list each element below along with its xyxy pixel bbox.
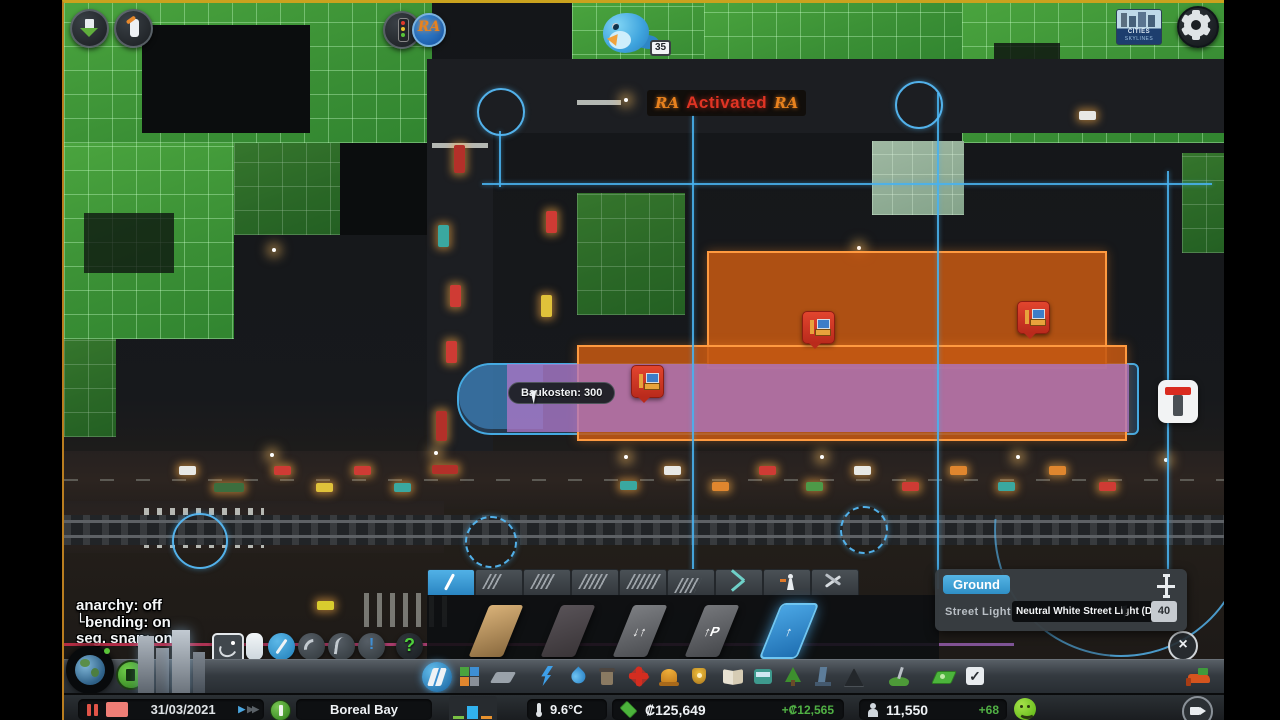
guide-circle [172, 513, 228, 569]
guide-circle [895, 81, 943, 129]
warning-toggle-button[interactable]: ! [358, 633, 385, 660]
vehicle [274, 466, 291, 475]
guide-line [482, 183, 1212, 185]
tab-medium-roads[interactable] [475, 569, 523, 596]
street-light-value-field[interactable]: 40 [1151, 601, 1177, 622]
road-item-oneway-parking[interactable]: ↑P [684, 605, 739, 657]
vehicle [541, 295, 552, 317]
tab-road-maintenance[interactable] [811, 569, 859, 596]
vehicle [854, 466, 871, 475]
toolbar-fire-department-button[interactable] [656, 664, 682, 688]
residential-demand-bar [453, 716, 464, 719]
vehicle [438, 225, 449, 247]
building-notification-icon [631, 365, 664, 398]
rci-demand-button[interactable] [270, 700, 291, 720]
toolbar-bulldozer-button[interactable] [1184, 664, 1218, 688]
logo-text: SKYLINES [1117, 36, 1161, 42]
guide-line [692, 115, 694, 589]
time-control-group: 31/03/2021 ▶ ▶▶ [78, 699, 264, 720]
city-name-field[interactable]: Boreal Bay [296, 699, 432, 720]
simulation-speed-indicator [106, 702, 128, 717]
mod-download-button[interactable] [70, 9, 109, 48]
straight-segment-button[interactable] [246, 633, 263, 660]
road [432, 59, 1224, 133]
tab-wide-roads[interactable] [619, 569, 667, 596]
question-icon: ? [396, 635, 423, 656]
cities-skylines-logo: CITIES SKYLINES [1116, 9, 1162, 45]
money-display[interactable]: ₡125,649 +₡12,565 [612, 699, 844, 720]
straight-line-icon [275, 639, 287, 655]
vehicle [712, 482, 729, 491]
free-camera-button[interactable] [1182, 696, 1213, 720]
game-screen: RA Activated RA 35 Baukosten: 300 [0, 0, 1280, 720]
activated-text: Activated [686, 93, 767, 113]
ground-tab-button[interactable]: Ground [943, 575, 1010, 594]
city-name: Boreal Bay [330, 702, 398, 717]
street-light [820, 455, 824, 459]
move-panel-handle[interactable] [1157, 577, 1175, 595]
street-light [270, 453, 274, 457]
vehicle [450, 285, 461, 307]
street-light [272, 248, 276, 252]
chirper-badge: 35 [650, 40, 671, 56]
ra-logo-icon: RA [774, 94, 798, 112]
zoned-block [234, 143, 340, 235]
toolbar-economy-button[interactable] [930, 664, 956, 688]
toolbar-landscaping-button[interactable] [886, 664, 912, 688]
money-value: ₡125,649 [645, 702, 706, 718]
street-light [857, 246, 861, 250]
fast-forward-button[interactable]: ▶▶ [247, 704, 257, 715]
toolbar-garbage-button[interactable] [594, 664, 620, 688]
building-silhouette [142, 25, 310, 133]
tab-small-roads[interactable] [427, 569, 475, 596]
exclamation-icon: ! [358, 636, 385, 654]
industrial-demand-bar [481, 716, 492, 719]
vehicle [432, 465, 458, 474]
guide-line [499, 131, 501, 187]
street-light [624, 98, 628, 102]
mod-citizen-button[interactable] [114, 9, 153, 48]
vehicle [316, 483, 333, 492]
temperature-display[interactable]: 9.6°C [527, 699, 607, 720]
road-item-oneway-selected[interactable]: ↑ [761, 605, 816, 657]
road-item-basic[interactable] [540, 605, 595, 657]
skyline-graphic [156, 648, 169, 694]
straight-road-mode-button[interactable] [268, 633, 295, 660]
zoned-block [64, 339, 116, 437]
building-notification-icon [802, 311, 835, 344]
vehicle [950, 466, 967, 475]
commercial-demand-bar [467, 706, 478, 719]
toolbar-water-button[interactable] [564, 664, 590, 688]
toolbar-education-button[interactable] [720, 664, 746, 688]
vehicle [354, 466, 371, 475]
crosswalk [577, 95, 621, 105]
s-curve-icon [334, 636, 349, 656]
toolbar-zoning-button[interactable] [457, 664, 483, 688]
cost-tooltip: Baukosten: 300 [508, 382, 615, 404]
toolbar-unique-buildings-button[interactable] [810, 664, 836, 688]
money-icon [619, 700, 637, 718]
population-delta: +68 [979, 703, 999, 717]
anarchy-status-panel: anarchy: off └bending: on seg. snap: on [76, 598, 173, 647]
temperature-value: 9.6°C [550, 702, 583, 717]
population-display[interactable]: 11,550 +68 [859, 699, 1007, 720]
close-panel-button[interactable]: × [1168, 631, 1198, 661]
vehicle [1079, 111, 1096, 120]
anarchy-status: anarchy: off [76, 598, 173, 614]
vehicle [902, 482, 919, 491]
toolbar-districts-button[interactable] [490, 664, 516, 688]
vehicle [394, 483, 411, 492]
population-icon [867, 703, 879, 717]
milestone-globe-button[interactable] [66, 646, 114, 694]
skyline-graphic [138, 636, 154, 694]
vehicle [436, 411, 447, 441]
guide-circle [840, 506, 888, 554]
progress-dot [104, 648, 110, 654]
play-button[interactable]: ▶ [238, 704, 245, 715]
activated-billboard: RA Activated RA [647, 90, 806, 116]
income-delta: +₡12,565 [782, 703, 834, 717]
logo-text: CITIES [1117, 29, 1161, 35]
guide-line [937, 93, 939, 589]
vehicle [620, 481, 637, 490]
road-item-two-way[interactable]: ↓↑ [612, 605, 667, 657]
street-light [624, 455, 628, 459]
guide-circle [477, 88, 525, 136]
zoned-block [704, 3, 966, 61]
vehicle [759, 466, 776, 475]
toolbar-transport-button[interactable] [750, 664, 776, 688]
building-silhouette [340, 143, 430, 235]
vehicle [806, 482, 823, 491]
rci-demand-bars[interactable] [449, 696, 497, 720]
chirper-beak [600, 32, 618, 46]
vehicle [446, 341, 457, 363]
two-way-arrows-icon: ↓↑ [631, 625, 649, 638]
street-light [434, 451, 438, 455]
roads-panel-body: ↓↑ ↑P ↑ [427, 595, 939, 661]
building-notification-icon [1017, 301, 1050, 334]
toolbar-roads-button[interactable] [424, 664, 450, 688]
tab-pedestrian-paths[interactable] [763, 569, 811, 596]
chirper-eye [612, 23, 619, 30]
main-toolbar: ✓ [64, 659, 1224, 694]
skyline-graphic [172, 630, 190, 694]
bending-status: └bending: on [76, 614, 173, 631]
zoned-block [577, 193, 685, 315]
date-display: 31/03/2021 [128, 702, 238, 717]
ra-logo-icon: RA [655, 94, 679, 112]
tab-intersections[interactable] [715, 569, 763, 596]
toolbar-police-button[interactable] [686, 664, 712, 688]
toolbar-healthcare-button[interactable] [626, 664, 652, 688]
curve-road-mode-button[interactable] [298, 633, 325, 660]
street-light-label: Street Light [945, 606, 1011, 618]
thermometer-icon [535, 703, 543, 717]
population-value: 11,550 [886, 702, 928, 718]
toolbar-monuments-button[interactable] [840, 664, 866, 688]
guide-circle [465, 516, 517, 568]
oneway-parking-icon: ↑P [702, 625, 722, 638]
chirper-button[interactable]: 35 [597, 9, 677, 65]
skyline-graphic [193, 652, 205, 694]
game-viewport[interactable]: RA Activated RA 35 Baukosten: 300 [62, 0, 1224, 720]
ra-logo-icon: RA [414, 19, 444, 35]
roads-panel-tabs [427, 569, 867, 595]
dead-end-sign-icon [1158, 380, 1198, 423]
happiness-smiley-button[interactable] [1014, 698, 1036, 720]
check-icon: ✓ [969, 668, 981, 684]
toolbar-electricity-button[interactable] [534, 664, 560, 688]
network-skins-panel: Ground Street Light Neutral White Street… [935, 569, 1187, 631]
close-icon: × [1178, 636, 1187, 653]
options-gear-button[interactable] [1177, 6, 1219, 48]
toolbar-policies-button[interactable]: ✓ [962, 664, 988, 688]
vehicle [664, 466, 681, 475]
vehicle [317, 601, 334, 610]
road-item-gravel[interactable] [468, 605, 523, 657]
vehicle [454, 145, 465, 173]
roundabout-builder-button[interactable]: RA [412, 13, 446, 47]
vehicle [179, 466, 196, 475]
camera-icon [1190, 707, 1200, 715]
zoned-block [1182, 153, 1224, 253]
up-arrow-icon: ↑ [783, 625, 795, 638]
vehicle [546, 211, 557, 233]
tab-large-roads[interactable] [523, 569, 571, 596]
building-silhouette [84, 213, 174, 273]
status-bar: 31/03/2021 ▶ ▶▶ Boreal Bay 9.6°C [64, 693, 1224, 720]
help-button[interactable]: ? [396, 633, 423, 660]
freeform-road-mode-button[interactable] [328, 633, 355, 660]
tab-highways[interactable] [571, 569, 619, 596]
building-silhouette [872, 141, 964, 215]
tab-extra-roads[interactable] [667, 569, 715, 596]
toolbar-parks-button[interactable] [780, 664, 806, 688]
pause-button[interactable] [85, 703, 103, 717]
vehicle [214, 483, 244, 492]
